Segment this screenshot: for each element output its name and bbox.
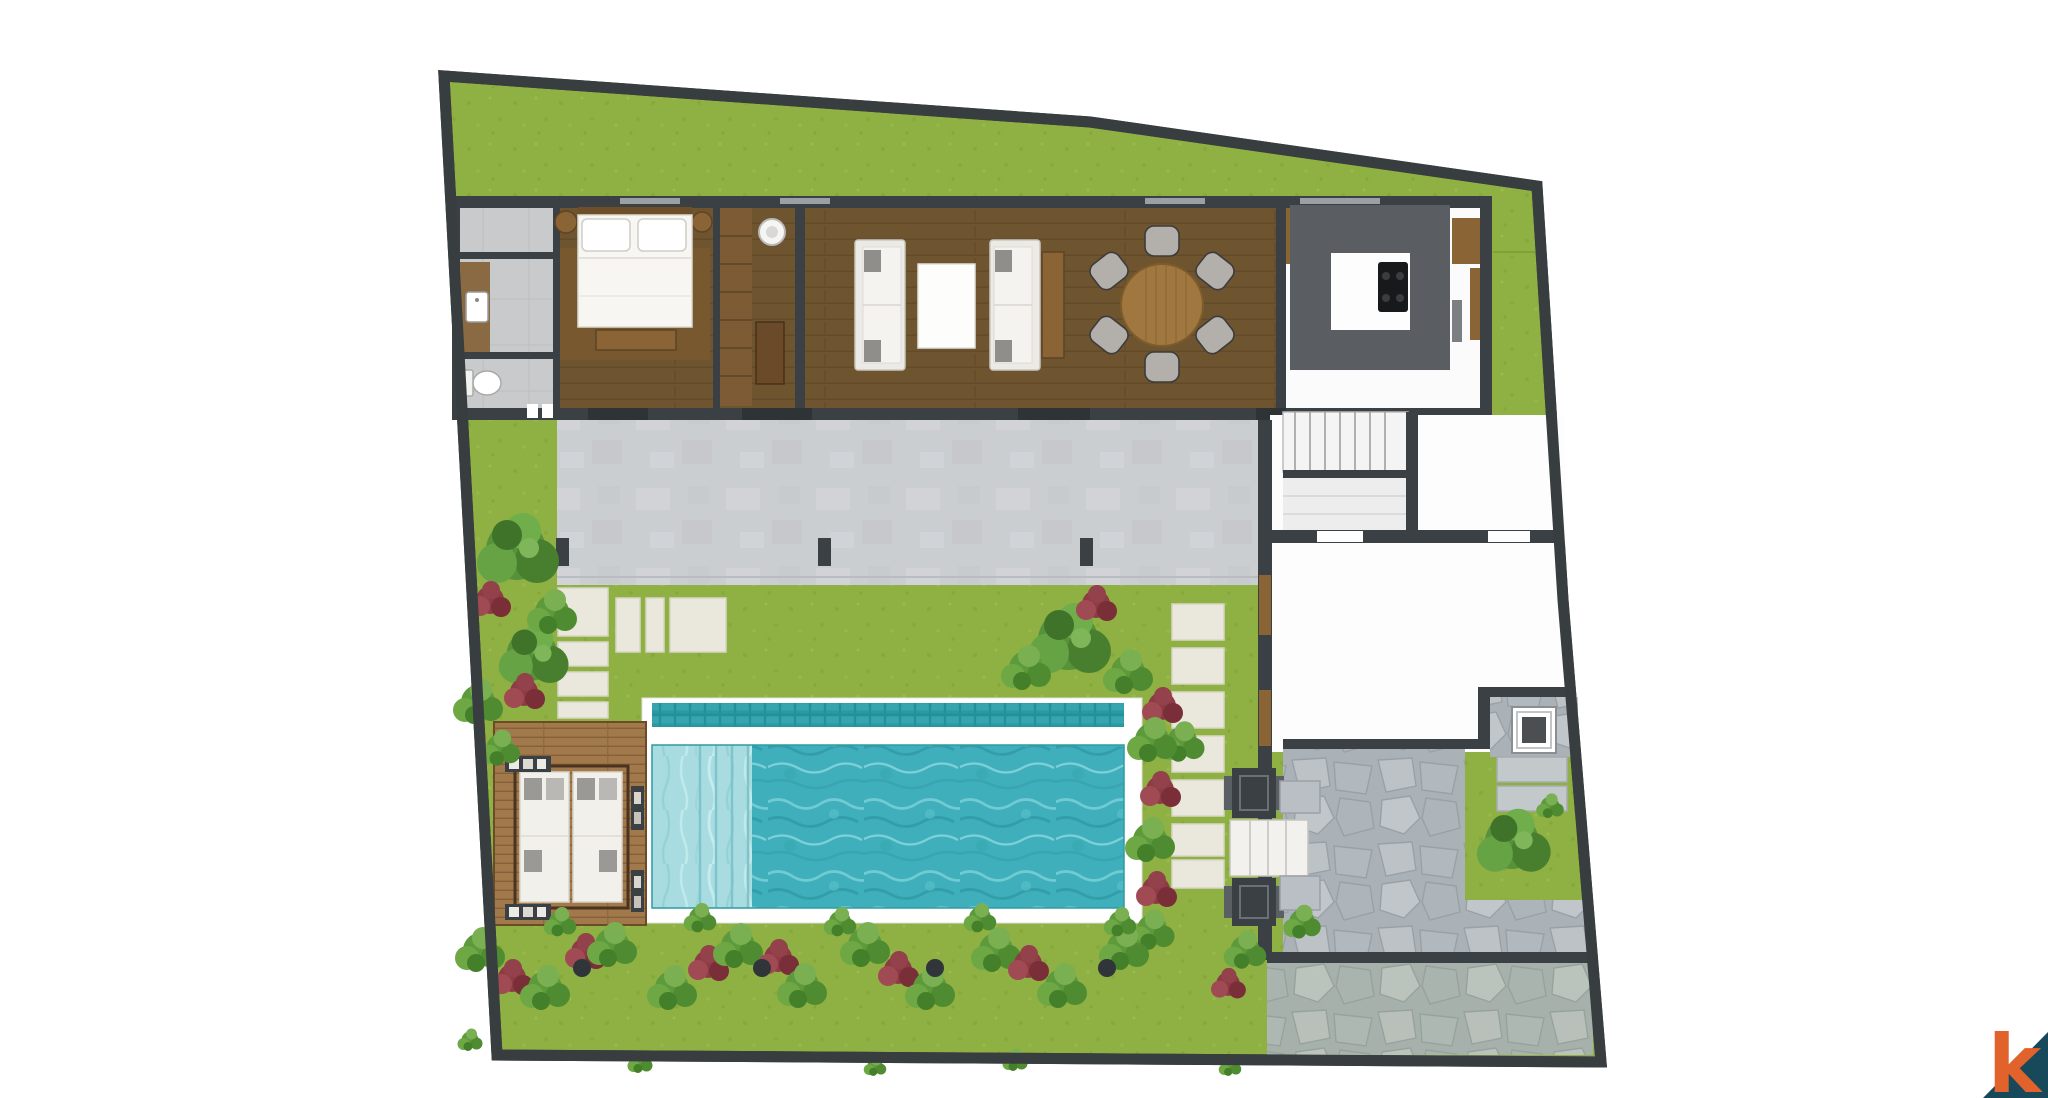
- pool: [642, 698, 1142, 923]
- brand-logo: k: [1983, 1018, 2048, 1098]
- logo-letter: k: [1988, 1018, 2043, 1098]
- wall-wardrobe-living: [795, 208, 805, 408]
- cabinet: [756, 322, 784, 384]
- bathroom-partition: [460, 352, 555, 359]
- sofa: [855, 240, 905, 370]
- deck-side-table: [631, 870, 644, 912]
- kitchen-appliance: [1452, 300, 1462, 342]
- terrace-post: [1080, 538, 1093, 566]
- dining-table: [1121, 264, 1203, 346]
- round-mirror-center: [766, 226, 778, 238]
- wall-living-kitchen: [1276, 208, 1286, 408]
- driveway-flagstone: [1267, 963, 1593, 1055]
- pillow: [582, 219, 630, 251]
- entrance-gate: [1224, 768, 1320, 926]
- faucet: [475, 298, 479, 302]
- bedside-table: [692, 212, 712, 232]
- front-wall: [1267, 952, 1593, 963]
- bathroom-partition: [460, 252, 555, 259]
- timber-door: [1259, 575, 1271, 635]
- sofa: [990, 240, 1040, 370]
- terrace: [556, 420, 1258, 585]
- pool-overflow-gutter: [652, 703, 1124, 727]
- deck-side-table: [631, 786, 644, 830]
- wall-bathroom-bedroom: [553, 208, 560, 408]
- stove: [1378, 262, 1408, 312]
- floor-plan-drawing: k: [0, 0, 2048, 1098]
- door-mark: [527, 404, 538, 418]
- floor-plan-page: k: [0, 0, 2048, 1098]
- water-feature: [1512, 707, 1556, 753]
- pillow: [638, 219, 686, 251]
- house: [452, 196, 1492, 420]
- bedside-table: [555, 211, 577, 233]
- gate-pillar: [1224, 878, 1284, 926]
- sun-lounger: [573, 772, 622, 902]
- toilet: [462, 370, 501, 396]
- pool-water: [752, 745, 1124, 908]
- foot-bench: [596, 330, 676, 350]
- terrace-post: [818, 538, 831, 566]
- door-opening: [1488, 531, 1530, 542]
- pool-shallow-ledge: [652, 745, 752, 908]
- side-console: [1042, 252, 1064, 358]
- gate-pillar: [1224, 768, 1284, 818]
- kitchen-tall-cabinet: [1452, 218, 1480, 264]
- door-mark: [542, 404, 553, 418]
- gate-stone-pad: [1280, 876, 1320, 910]
- gate-stone-pad: [1280, 781, 1320, 813]
- bedroom: [555, 207, 712, 360]
- timber-door: [1259, 690, 1271, 746]
- garage-wall: [1283, 739, 1485, 749]
- deck-side-table: [505, 904, 551, 920]
- sun-lounger: [520, 772, 569, 902]
- sink: [466, 292, 488, 322]
- coffee-table: [918, 264, 975, 348]
- wall-bedroom-wardrobe: [713, 208, 720, 408]
- stair-wall: [1406, 412, 1418, 543]
- staircase: [1283, 412, 1408, 530]
- kitchen-cabinet: [1470, 268, 1480, 340]
- door-opening: [1317, 531, 1363, 542]
- flagstone-paving: [1465, 900, 1587, 955]
- garage-wall: [1483, 687, 1575, 697]
- double-bed: [578, 207, 692, 327]
- terrace-slab: [557, 420, 1258, 585]
